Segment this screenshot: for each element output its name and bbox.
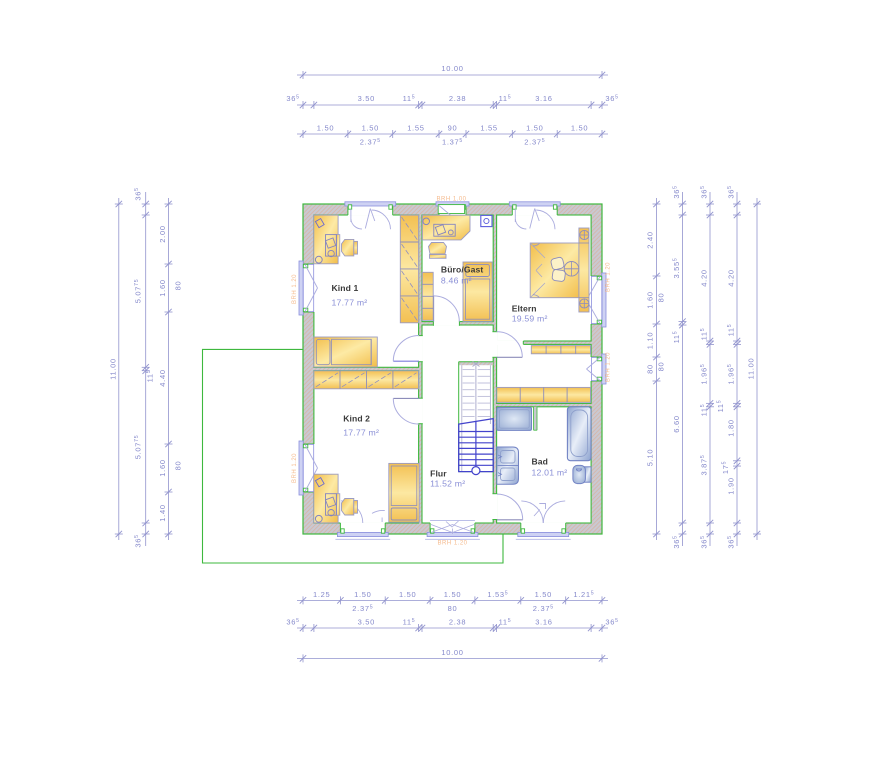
svg-text:11.00: 11.00 [109, 358, 118, 380]
svg-text:10.00: 10.00 [441, 648, 463, 657]
svg-text:Flur: Flur [430, 469, 447, 479]
svg-text:80: 80 [174, 281, 183, 291]
svg-text:Kind 2: Kind 2 [343, 414, 370, 424]
svg-text:BRH 1.20: BRH 1.20 [437, 541, 467, 547]
svg-text:1.60: 1.60 [646, 291, 655, 308]
svg-text:1.90: 1.90 [727, 477, 736, 494]
svg-text:115: 115 [727, 324, 736, 337]
svg-text:1.60: 1.60 [158, 459, 167, 476]
svg-text:3.555: 3.555 [672, 258, 681, 279]
svg-text:3.50: 3.50 [358, 618, 375, 627]
svg-text:1.50: 1.50 [444, 590, 461, 599]
svg-text:2.40: 2.40 [646, 231, 655, 248]
svg-text:2.00: 2.00 [158, 225, 167, 242]
svg-text:1.535: 1.535 [487, 590, 508, 599]
svg-text:1.10: 1.10 [646, 332, 655, 349]
svg-text:115: 115 [499, 94, 512, 103]
svg-text:BRH 1.20: BRH 1.20 [292, 274, 298, 304]
svg-text:5.10: 5.10 [646, 449, 655, 466]
svg-text:80: 80 [657, 362, 666, 372]
svg-text:1.40: 1.40 [158, 504, 167, 521]
svg-text:2.375: 2.375 [360, 138, 381, 147]
svg-text:365: 365 [286, 94, 299, 103]
svg-text:1.965: 1.965 [727, 364, 736, 385]
svg-text:BRH 1.20: BRH 1.20 [292, 453, 298, 483]
svg-text:BRH 1.20: BRH 1.20 [606, 352, 612, 382]
svg-text:175: 175 [721, 461, 730, 474]
svg-text:Bad: Bad [532, 456, 549, 466]
svg-text:115: 115 [716, 400, 725, 413]
svg-text:5.0775: 5.0775 [134, 435, 143, 460]
svg-text:1.50: 1.50 [354, 590, 371, 599]
svg-text:1.50: 1.50 [362, 124, 379, 133]
svg-text:1.80: 1.80 [727, 419, 736, 436]
svg-text:Eltern: Eltern [512, 303, 537, 313]
svg-text:365: 365 [727, 185, 736, 198]
svg-text:1.50: 1.50 [399, 590, 416, 599]
svg-text:1.965: 1.965 [700, 364, 709, 385]
svg-text:12.01 m²: 12.01 m² [532, 468, 568, 478]
svg-text:115: 115 [499, 618, 512, 627]
svg-text:365: 365 [134, 187, 143, 200]
svg-text:5.0775: 5.0775 [134, 279, 143, 304]
svg-text:3.875: 3.875 [700, 455, 709, 476]
svg-text:4.40: 4.40 [158, 369, 167, 386]
svg-text:1.55: 1.55 [480, 124, 497, 133]
svg-text:1.25: 1.25 [313, 590, 330, 599]
svg-text:115: 115 [700, 404, 709, 417]
svg-text:1.50: 1.50 [571, 124, 588, 133]
svg-text:3.16: 3.16 [535, 618, 552, 627]
svg-text:1.55: 1.55 [407, 124, 424, 133]
svg-text:2.375: 2.375 [352, 604, 373, 613]
svg-text:19.59 m²: 19.59 m² [512, 314, 548, 324]
svg-text:115: 115 [700, 328, 709, 341]
svg-text:1.375: 1.375 [442, 138, 463, 147]
svg-text:365: 365 [605, 94, 618, 103]
svg-text:11.00: 11.00 [747, 358, 756, 380]
svg-text:2.38: 2.38 [449, 94, 466, 103]
svg-text:2.375: 2.375 [533, 604, 554, 613]
svg-text:80: 80 [646, 364, 655, 374]
svg-text:90: 90 [448, 124, 458, 133]
svg-text:17.77 m²: 17.77 m² [332, 298, 368, 308]
svg-text:80: 80 [174, 461, 183, 471]
svg-text:115: 115 [672, 331, 681, 344]
svg-text:2.38: 2.38 [449, 618, 466, 627]
svg-text:3.50: 3.50 [358, 94, 375, 103]
svg-text:1.50: 1.50 [526, 124, 543, 133]
svg-text:4.20: 4.20 [700, 269, 709, 286]
svg-text:115: 115 [146, 370, 155, 383]
svg-text:10.00: 10.00 [441, 64, 463, 73]
svg-text:BRH 1.00: BRH 1.00 [436, 196, 466, 202]
svg-text:2.375: 2.375 [524, 138, 545, 147]
svg-text:115: 115 [403, 94, 416, 103]
svg-text:365: 365 [605, 618, 618, 627]
svg-text:Büro/Gast: Büro/Gast [441, 264, 483, 274]
svg-text:3.16: 3.16 [535, 94, 552, 103]
svg-text:115: 115 [403, 618, 416, 627]
svg-text:1.215: 1.215 [573, 590, 594, 599]
svg-text:365: 365 [700, 185, 709, 198]
svg-text:365: 365 [134, 534, 143, 547]
svg-text:Kind 1: Kind 1 [332, 283, 359, 293]
svg-text:80: 80 [448, 604, 458, 613]
svg-text:BRH 1.20: BRH 1.20 [606, 262, 612, 292]
svg-text:17.77 m²: 17.77 m² [343, 428, 379, 438]
svg-text:11.52 m²: 11.52 m² [430, 479, 465, 489]
svg-text:1.50: 1.50 [317, 124, 334, 133]
svg-text:8.46 m²: 8.46 m² [441, 276, 472, 286]
svg-text:80: 80 [657, 293, 666, 303]
svg-text:1.60: 1.60 [158, 279, 167, 296]
svg-text:365: 365 [672, 185, 681, 198]
svg-text:1.50: 1.50 [535, 590, 552, 599]
svg-text:365: 365 [286, 618, 299, 627]
svg-text:4.20: 4.20 [727, 269, 736, 286]
svg-text:6.60: 6.60 [672, 415, 681, 432]
